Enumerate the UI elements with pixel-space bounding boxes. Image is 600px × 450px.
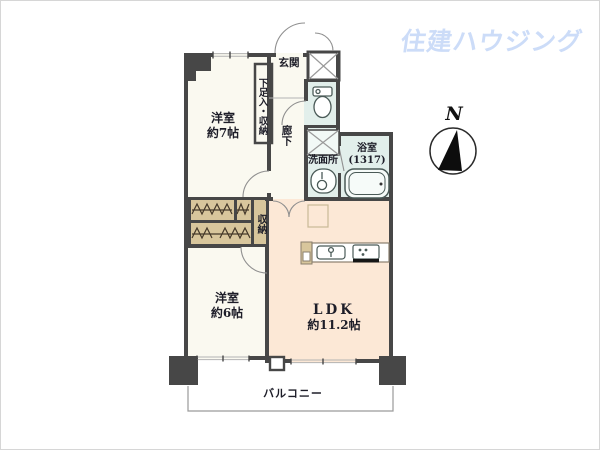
floorplan-page: 住建ハウジング N 洋室 約7帖 下足入・収納 玄関 廊下 洗面所 浴室 (13… [0, 0, 600, 450]
label-western-room-7: 洋室 約7帖 [184, 111, 262, 140]
label-shoe-storage: 下足入・収納 [257, 68, 267, 144]
bathtub-icon [345, 169, 389, 198]
label-balcony: バルコニー [248, 387, 338, 400]
label-ldk: LDK 約11.2帖 [289, 302, 379, 333]
label-entrance: 玄関 [273, 57, 305, 70]
label-western-room-6: 洋室 約6帖 [189, 291, 265, 320]
north-arrow-icon [430, 128, 476, 174]
washbasin-icon [311, 169, 336, 193]
label-closet: 収納 [255, 208, 265, 240]
label-washroom: 洗面所 [304, 155, 342, 167]
washing-machine-icon [307, 130, 339, 155]
company-logo: 住建ハウジング [398, 22, 585, 58]
label-bathroom: 浴室 (1317) [342, 143, 392, 167]
toilet-icon [313, 87, 332, 118]
label-hallway: 廊下 [281, 122, 292, 148]
north-label: N [441, 103, 467, 125]
